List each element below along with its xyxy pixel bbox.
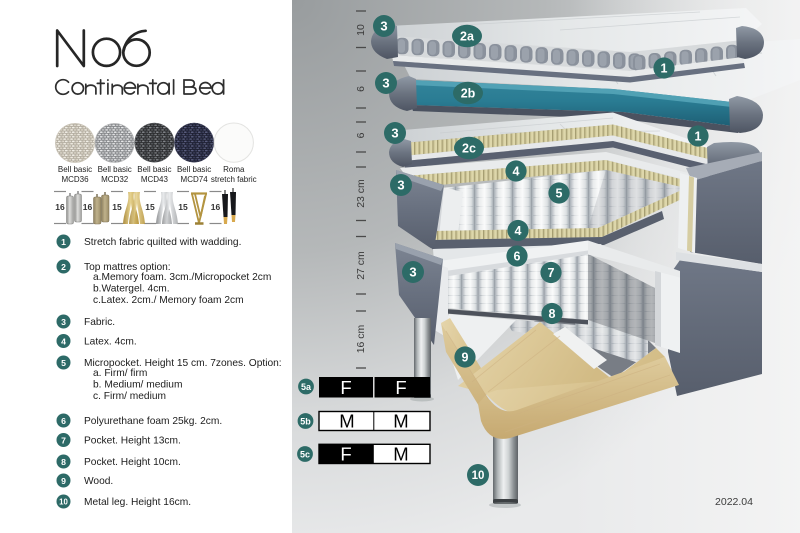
svg-text:2: 2 [61,262,66,272]
svg-text:c.Latex. 2cm./ Memory foam 2cm: c.Latex. 2cm./ Memory foam 2cm [93,295,244,306]
svg-text:6: 6 [514,250,521,264]
svg-text:2022.04: 2022.04 [715,496,753,508]
svg-text:M: M [339,411,354,432]
svg-text:15: 15 [178,202,188,212]
svg-text:10: 10 [59,498,68,507]
svg-text:MCD43: MCD43 [141,175,169,184]
svg-text:F: F [395,377,406,398]
svg-text:M: M [393,411,408,432]
svg-text:16: 16 [55,202,65,212]
svg-text:3: 3 [380,19,387,34]
svg-text:16: 16 [211,202,221,212]
svg-text:Bell basic: Bell basic [137,165,171,174]
svg-text:F: F [340,444,351,465]
svg-text:stretch fabric: stretch fabric [211,175,257,184]
svg-text:MCD32: MCD32 [101,175,129,184]
svg-text:3: 3 [382,76,389,91]
svg-text:5: 5 [556,187,563,201]
svg-text:23 cm: 23 cm [355,179,367,208]
svg-text:2b: 2b [461,87,476,101]
svg-text:9: 9 [462,351,469,365]
svg-text:3: 3 [397,178,404,193]
svg-text:8: 8 [61,457,66,467]
svg-text:1: 1 [695,130,702,144]
svg-text:Bell basic: Bell basic [98,165,132,174]
svg-text:5: 5 [61,358,66,368]
svg-text:10: 10 [355,24,367,36]
svg-text:5b: 5b [300,416,311,426]
svg-text:Latex. 4cm.: Latex. 4cm. [84,337,137,348]
svg-text:Fabric.: Fabric. [84,317,115,328]
svg-text:4: 4 [61,337,66,347]
svg-text:F: F [340,377,351,398]
svg-text:Bell basic: Bell basic [177,165,211,174]
svg-text:Roma: Roma [223,165,245,174]
svg-text:a. Firm/ firm: a. Firm/ firm [93,368,147,379]
svg-text:4: 4 [515,224,522,238]
svg-text:4: 4 [513,165,520,179]
svg-text:6: 6 [355,132,367,138]
svg-text:3: 3 [409,265,416,280]
svg-text:8: 8 [549,307,556,321]
svg-text:10: 10 [472,470,485,482]
svg-text:c. Firm/ medium: c. Firm/ medium [93,391,166,402]
svg-text:MCD74: MCD74 [181,175,209,184]
svg-text:M: M [393,444,408,465]
svg-text:15: 15 [112,202,122,212]
svg-text:5c: 5c [300,449,310,459]
svg-text:7: 7 [548,266,555,280]
svg-text:27 cm: 27 cm [355,251,367,280]
svg-text:15: 15 [145,202,155,212]
svg-text:9: 9 [61,476,66,486]
svg-text:Wood.: Wood. [84,476,113,487]
svg-text:Stretch fabric quilted with wa: Stretch fabric quilted with wadding. [84,237,241,248]
svg-text:Pocket. Height 13cm.: Pocket. Height 13cm. [84,436,181,447]
svg-text:6: 6 [355,86,367,92]
svg-text:1: 1 [661,62,668,76]
svg-text:1: 1 [61,237,66,247]
svg-text:16 cm: 16 cm [355,324,367,353]
svg-text:MCD36: MCD36 [61,175,89,184]
svg-text:b. Medium/ medium: b. Medium/ medium [93,380,182,391]
svg-text:Polyurethane foam 25kg. 2cm.: Polyurethane foam 25kg. 2cm. [84,416,222,427]
svg-text:6: 6 [61,416,66,426]
svg-text:5a: 5a [301,382,312,392]
svg-text:2c: 2c [462,142,476,156]
svg-text:b.Watergel. 4cm.: b.Watergel. 4cm. [93,284,170,295]
svg-text:Bell basic: Bell basic [58,165,92,174]
svg-text:3: 3 [391,126,398,141]
svg-text:7: 7 [61,436,66,446]
svg-text:16: 16 [83,202,93,212]
svg-text:Metal leg. Height 16cm.: Metal leg. Height 16cm. [84,497,191,508]
svg-text:a.Memory foam. 3cm./Micropocke: a.Memory foam. 3cm./Micropocket 2cm [93,272,271,283]
svg-text:3: 3 [61,317,66,327]
svg-text:2a: 2a [460,30,475,44]
svg-text:Pocket. Height 10cm.: Pocket. Height 10cm. [84,457,181,468]
